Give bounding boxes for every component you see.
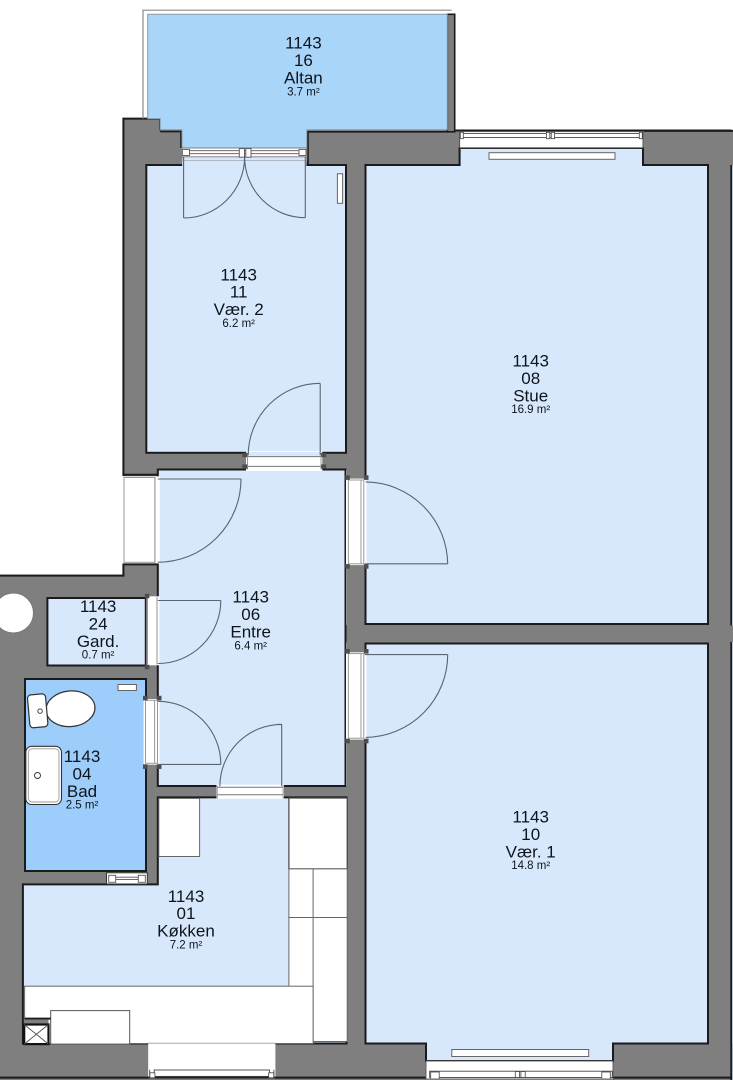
svg-text:Stue: Stue [513, 386, 548, 405]
svg-text:1143: 1143 [168, 887, 205, 906]
svg-text:2.5 m²: 2.5 m² [66, 800, 99, 812]
svg-text:1143: 1143 [64, 747, 101, 766]
svg-text:Køkken: Køkken [157, 922, 215, 941]
svg-text:08: 08 [521, 369, 540, 388]
svg-text:06: 06 [241, 605, 260, 624]
svg-text:01: 01 [177, 904, 196, 923]
svg-text:Entre: Entre [230, 623, 271, 642]
svg-text:1143: 1143 [512, 808, 549, 827]
svg-text:Vær. 2: Vær. 2 [214, 300, 264, 319]
svg-text:Vær. 1: Vær. 1 [506, 842, 556, 861]
svg-text:04: 04 [73, 764, 92, 783]
svg-text:10: 10 [521, 825, 540, 844]
svg-text:16.9 m²: 16.9 m² [511, 404, 550, 416]
svg-text:7.2 m²: 7.2 m² [170, 939, 203, 951]
svg-text:Bad: Bad [67, 782, 97, 801]
svg-text:16: 16 [294, 51, 313, 70]
svg-text:14.8 m²: 14.8 m² [511, 860, 550, 872]
svg-text:1143: 1143 [232, 588, 269, 607]
svg-text:3.7 m²: 3.7 m² [287, 86, 320, 98]
svg-text:0.7 m²: 0.7 m² [82, 650, 115, 662]
svg-text:6.2 m²: 6.2 m² [222, 318, 255, 330]
svg-text:6.4 m²: 6.4 m² [234, 640, 267, 652]
svg-text:11: 11 [230, 283, 248, 302]
svg-text:Gard.: Gard. [77, 632, 120, 651]
svg-text:1143: 1143 [285, 34, 322, 53]
svg-text:Altan: Altan [284, 69, 323, 88]
svg-text:24: 24 [89, 615, 108, 634]
svg-text:1143: 1143 [512, 352, 549, 371]
svg-text:1143: 1143 [220, 265, 257, 284]
svg-text:1143: 1143 [80, 597, 117, 616]
